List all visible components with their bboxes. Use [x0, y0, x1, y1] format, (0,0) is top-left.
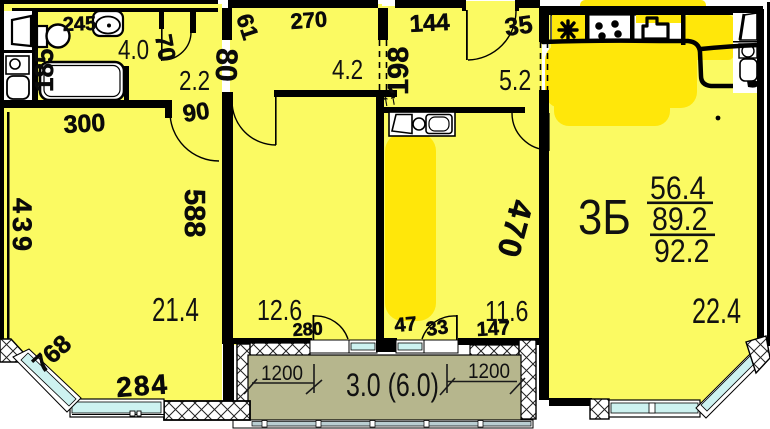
- svg-text:↑↑: ↑↑: [381, 91, 399, 110]
- svg-text:144: 144: [409, 9, 451, 38]
- svg-text:2.2: 2.2: [179, 66, 210, 97]
- svg-text:1200: 1200: [261, 362, 303, 385]
- svg-text:4.2: 4.2: [332, 55, 363, 86]
- svg-text:80: 80: [209, 48, 243, 83]
- svg-text:22.4: 22.4: [692, 292, 741, 331]
- svg-text:284: 284: [115, 368, 170, 403]
- svg-text:90: 90: [181, 97, 211, 127]
- svg-text:185: 185: [29, 49, 59, 92]
- svg-text:4.0: 4.0: [118, 35, 149, 66]
- svg-text:588: 588: [178, 189, 210, 237]
- svg-text:21.4: 21.4: [152, 292, 199, 329]
- svg-text:280: 280: [292, 318, 323, 340]
- svg-text:198: 198: [383, 47, 415, 95]
- svg-text:33: 33: [425, 316, 450, 341]
- svg-text:245: 245: [62, 13, 96, 36]
- svg-text:3.0 (6.0): 3.0 (6.0): [346, 368, 439, 404]
- svg-text:1200: 1200: [468, 360, 510, 383]
- svg-text:35: 35: [503, 10, 535, 42]
- svg-text:147: 147: [476, 317, 510, 341]
- svg-text:439: 439: [7, 198, 37, 255]
- svg-text:3Б: 3Б: [578, 190, 631, 245]
- svg-text:47: 47: [394, 313, 418, 337]
- svg-text:270: 270: [290, 6, 328, 34]
- svg-text:89.2: 89.2: [652, 203, 707, 238]
- svg-text:5.2: 5.2: [499, 63, 531, 96]
- svg-text:56.4: 56.4: [650, 172, 705, 207]
- svg-text:92.2: 92.2: [654, 235, 709, 270]
- svg-text:70: 70: [149, 32, 180, 63]
- svg-text:300: 300: [63, 109, 106, 139]
